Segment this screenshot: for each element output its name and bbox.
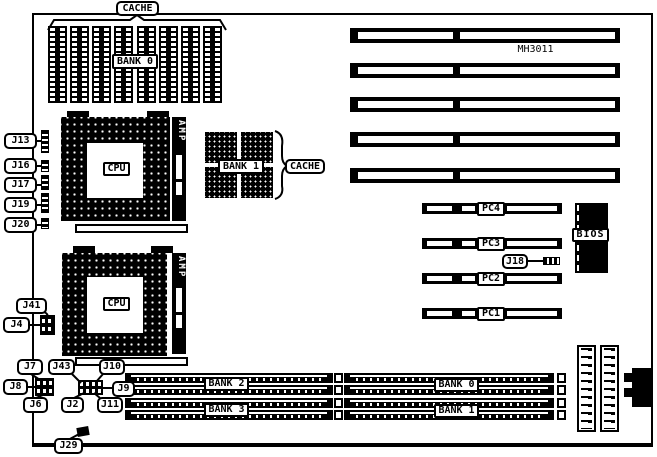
socket-2-lever [75,357,188,366]
chip-pins [72,28,77,101]
isa-slot-segment [358,172,453,179]
simm-end-cap [334,385,343,395]
jumper-label-j7: J7 [17,359,43,375]
isa-slot-segment [460,32,615,39]
chip-pins [215,28,220,101]
jumper-j41-j4-block [40,315,55,335]
jumper-label-j20: J20 [4,217,37,233]
isa-slot-segment [460,172,615,179]
amp-slot [176,288,182,312]
dip-bank-label: BANK 0 [112,54,158,69]
jumper-j16 [41,160,49,172]
jumper-label-j6: J6 [23,397,48,413]
pci-slot-segment [427,241,452,246]
jumper-label-j4: J4 [3,317,30,333]
board-model-text: MH3011 [508,44,563,55]
chip-pins [60,28,65,101]
jumper-label-j41: J41 [16,298,47,314]
isa-slot-segment [358,101,453,108]
jumper-label-j16: J16 [4,158,37,174]
simm-end-cap [557,410,566,420]
jumper-label-j11: J11 [97,397,123,413]
chip-pins [94,28,99,101]
cache-dip-chip [159,26,178,103]
cache-dip-chip [92,26,111,103]
chip-pins [171,28,176,101]
pci-slot-segment [462,206,475,211]
isa-slot-segment [358,32,453,39]
chip-pins [50,28,55,101]
jumper-label-j19: J19 [4,197,37,213]
jumper-pins [37,389,52,393]
isa-slot [350,28,620,43]
jumper-pins [42,319,53,323]
power-pins [611,348,615,429]
simm-end-cap [334,398,343,408]
chip-pins [193,28,198,101]
jumper-pins [80,389,101,393]
jumper-j7-j8-j6-block [35,378,54,396]
jumper-pins [42,327,53,331]
power-connector [577,345,596,432]
jumper-j13 [41,130,49,153]
isa-slot [350,63,620,78]
sram-bank-label: BANK 1 [218,159,264,174]
simm-bank3-label: BANK 3 [204,403,249,417]
simm-bank1-label: BANK 1 [434,404,479,418]
pci-slot-segment [507,311,557,316]
chip-pins [82,28,87,101]
power-pins [588,348,592,429]
isa-slot [350,132,620,147]
jumper-label-j13: J13 [4,133,37,149]
simm-end-cap [557,385,566,395]
pci-slot-segment [462,311,475,316]
cpu-1-label: CPU [103,162,130,176]
chip-pins [205,28,210,101]
amp-2-label: AMP [172,256,186,278]
jumper-label-j9: J9 [112,381,135,397]
simm-end-cap [334,373,343,383]
simm-bank0-label: BANK 0 [434,378,479,392]
isa-slot-segment [358,136,453,143]
pci-slot-segment [427,276,452,281]
pci-slot-segment [507,206,557,211]
pci-slot-label-pc2: PC2 [477,272,505,286]
jumper-label-j10: J10 [99,359,125,375]
cache-dip-chip [181,26,200,103]
motherboard-diagram: CACHE BANK 0 CPU AMP CPU AMP BANK 1 CACH… [0,0,657,457]
isa-slot-segment [460,136,615,143]
pci-slot-segment [462,241,475,246]
pci-slot-segment [427,311,452,316]
keyboard-connector-pin [624,373,633,382]
amp-slot [176,182,182,195]
bios-label: BIOS [572,228,609,242]
chip-pins [104,28,109,101]
amp-slot [176,315,182,328]
jumper-label-j29: J29 [54,438,83,454]
jumper-label-j43: J43 [48,359,75,375]
jumper-j18 [543,257,560,265]
isa-slot-segment [460,101,615,108]
amp-slot [176,155,182,179]
isa-slot [350,168,620,183]
amp-1-label: AMP [172,120,186,142]
pci-slot-label-pc3: PC3 [477,237,505,251]
pci-slot-segment [462,276,475,281]
simm-end-cap [334,410,343,420]
pci-slot-label-pc4: PC4 [477,202,505,216]
cache-top-label: CACHE [116,1,159,16]
pci-slot-segment [427,206,452,211]
jumper-j20 [41,218,49,229]
jumper-j17 [41,175,49,190]
cache-dip-chip [203,26,222,103]
amp-connector-1: AMP [172,117,186,221]
simm-bank2-label: BANK 2 [204,377,249,391]
jumper-central-block [78,380,103,395]
amp-connector-2: AMP [172,253,186,354]
jumper-label-j18: J18 [502,254,528,269]
simm-end-cap [557,398,566,408]
socket-1-lever [75,224,188,233]
cache-right-label: CACHE [285,159,325,174]
keyboard-connector [632,368,653,407]
keyboard-connector-pin [624,388,633,397]
cache-dip-chip [48,26,67,103]
jumper-label-j8: J8 [3,379,28,395]
pci-slot-segment [507,241,557,246]
cache-dip-chip [70,26,89,103]
jumper-label-j2: J2 [61,397,84,413]
isa-slot [350,97,620,112]
pci-slot-segment [507,276,557,281]
chip-pins [183,28,188,101]
power-connector [600,345,619,432]
socket-latch [151,246,173,253]
cpu-2-label: CPU [103,297,130,311]
isa-slot-segment [358,67,453,74]
simm-end-cap [557,373,566,383]
isa-slot-segment [460,67,615,74]
socket-latch [73,246,95,253]
jumper-label-j17: J17 [4,177,37,193]
jumper-pins [80,382,101,386]
chip-pins [161,28,166,101]
jumper-j19 [41,193,49,213]
jumper-pins [37,381,52,385]
pci-slot-label-pc1: PC1 [477,307,505,321]
